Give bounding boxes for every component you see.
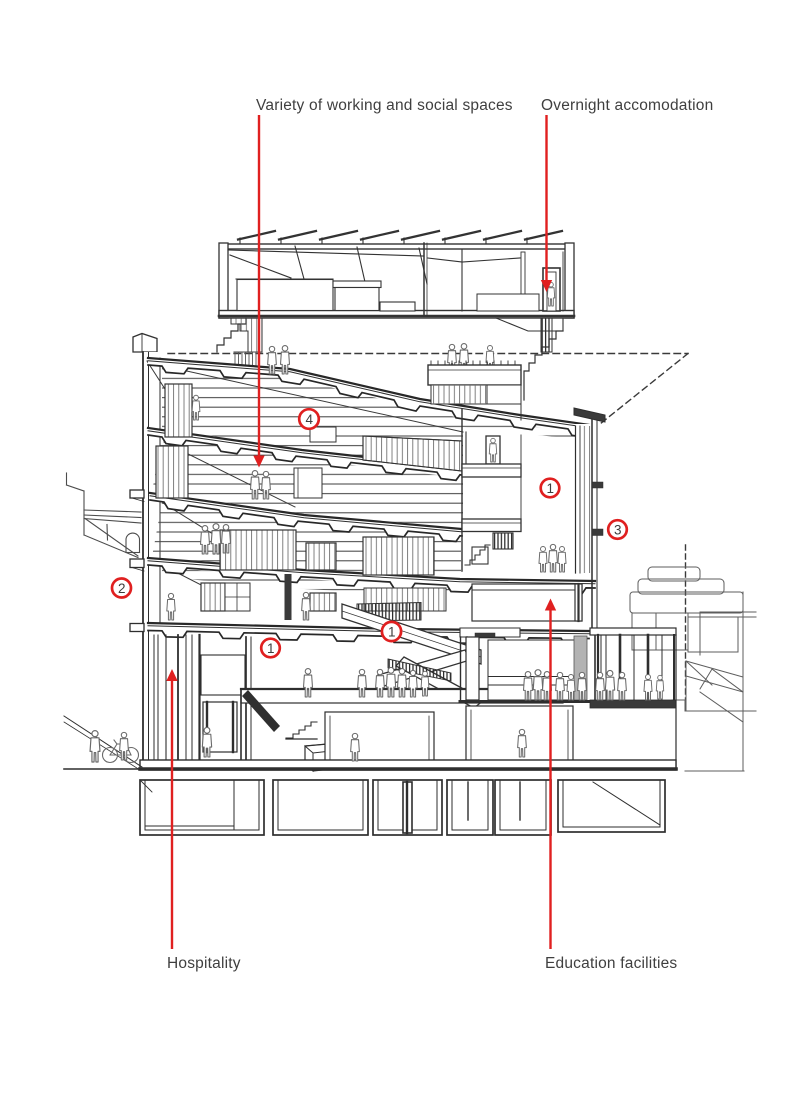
svg-text:1: 1 — [267, 641, 275, 656]
svg-text:4: 4 — [306, 412, 314, 427]
svg-text:1: 1 — [547, 481, 555, 496]
svg-text:1: 1 — [388, 624, 396, 639]
svg-text:2: 2 — [118, 581, 126, 596]
svg-text:3: 3 — [614, 522, 622, 537]
